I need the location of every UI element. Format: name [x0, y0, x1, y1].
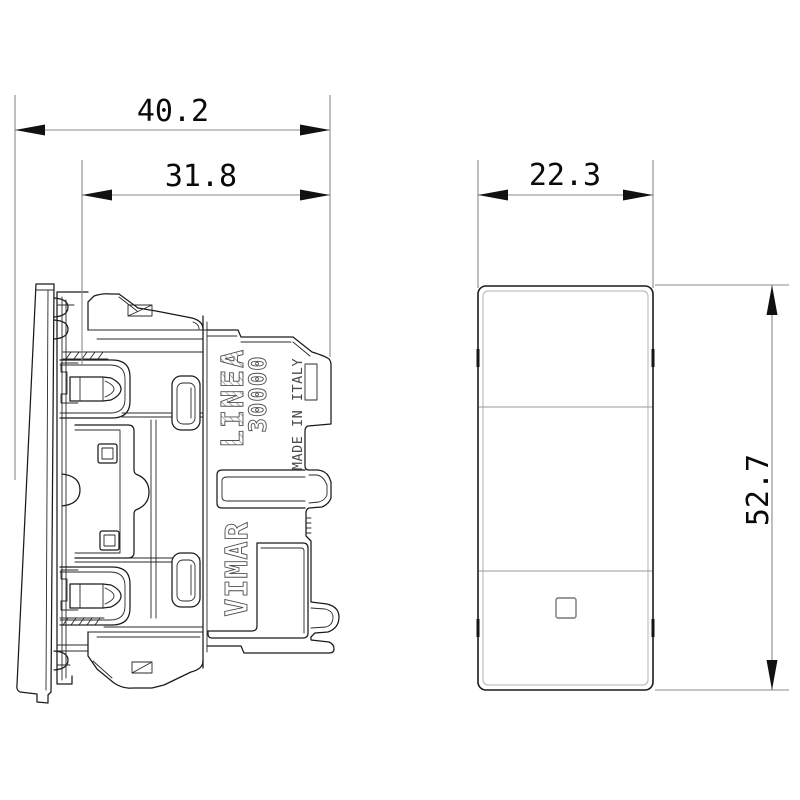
dimension-value-front-height: 52.7 — [741, 454, 776, 526]
dimensions: 40.2 31.8 22.3 52.7 — [15, 94, 789, 690]
top-latch-arm — [88, 294, 203, 330]
mid-columns — [151, 420, 156, 618]
edge-serration-ticks — [306, 518, 311, 533]
slot-lower — [172, 553, 200, 607]
side-view: LINEA 30000 MADE IN ITALY VIMAR — [17, 284, 339, 703]
bottom-latch-arm-details — [93, 637, 200, 678]
mounting-slot-inner — [222, 475, 327, 503]
indicator-window — [556, 598, 576, 618]
serration-strip-top — [63, 352, 108, 359]
marking-model: 30000 — [244, 355, 272, 432]
bottom-latch-arm — [88, 632, 203, 688]
dimension-value-overall-depth: 40.2 — [137, 94, 209, 129]
technical-drawing-page: LINEA 30000 MADE IN ITALY VIMAR 40.2 31.… — [0, 0, 800, 800]
label-slot-rect — [305, 364, 317, 400]
front-view-outline — [478, 286, 653, 690]
slot-upper — [172, 376, 200, 430]
mounting-slot — [217, 470, 305, 508]
upper-plunger-pin — [70, 377, 121, 401]
body-cutout-inner — [261, 548, 304, 633]
rocker-pivot-bump — [62, 474, 80, 506]
serration-strip-bottom — [60, 618, 104, 625]
front-view — [478, 286, 653, 690]
rocker-button — [17, 284, 54, 703]
dimension-value-front-width: 22.3 — [529, 158, 601, 193]
contact-square-lower — [100, 531, 119, 550]
lower-plunger-pin — [70, 584, 121, 608]
contact-square-upper — [98, 444, 117, 463]
top-latch-arm-details — [119, 297, 199, 329]
marking-brand: VIMAR — [220, 521, 255, 616]
marking-origin: MADE IN ITALY — [290, 358, 306, 470]
lower-claw-inner — [311, 608, 333, 628]
extension-lines — [15, 95, 789, 690]
dimension-drawing-svg: LINEA 30000 MADE IN ITALY VIMAR 40.2 31.… — [0, 0, 800, 800]
dimension-value-mechanism-depth: 31.8 — [165, 159, 237, 194]
